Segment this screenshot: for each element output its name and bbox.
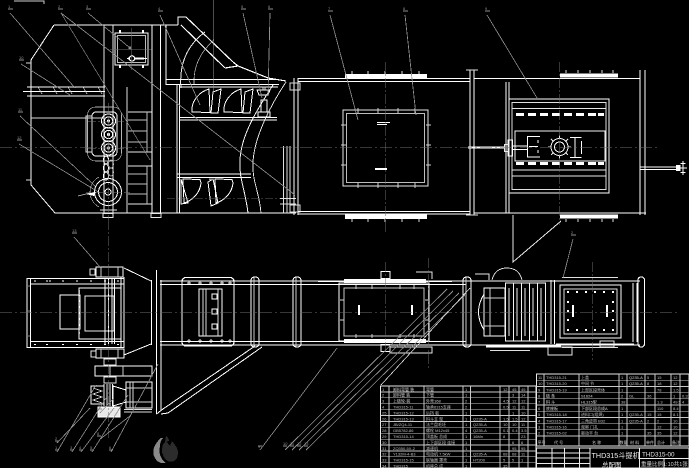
svg-text:下部区段总成A: 下部区段总成A <box>581 405 608 411</box>
svg-text:减速机: 减速机 <box>426 445 438 451</box>
svg-text:弯管: 弯管 <box>426 386 434 392</box>
svg-text:1.5: 1.5 <box>673 387 679 392</box>
svg-text:28: 28 <box>382 428 387 433</box>
svg-text:轴承6315支座: 轴承6315支座 <box>426 404 451 410</box>
svg-text:卸料弯管 装: 卸料弯管 装 <box>393 386 414 392</box>
svg-text:68: 68 <box>503 452 508 457</box>
svg-text:10: 10 <box>673 418 678 423</box>
svg-text:Q235-A: Q235-A <box>473 428 487 433</box>
svg-text:材 料: 材 料 <box>630 439 639 445</box>
svg-text:THD315-19: THD315-19 <box>546 387 567 392</box>
svg-text:12: 12 <box>521 416 526 421</box>
svg-text:15: 15 <box>647 412 652 417</box>
svg-text:THD315-17: THD315-17 <box>546 418 567 423</box>
svg-text:上下部区段 连接: 上下部区段 连接 <box>426 439 455 445</box>
svg-text:10: 10 <box>19 55 24 60</box>
svg-text:序号: 序号 <box>538 439 546 445</box>
svg-text:THD315-14: THD315-14 <box>393 434 414 439</box>
svg-text:Q235-A: Q235-A <box>629 381 643 386</box>
svg-text:12: 12 <box>512 399 517 404</box>
svg-text:Q235-A: Q235-A <box>629 418 643 423</box>
svg-text:电动机 7.5kW: 电动机 7.5kW <box>426 451 451 457</box>
svg-text:后挡 板: 后挡 板 <box>426 409 439 415</box>
svg-text:上部区段壳体: 上部区段壳体 <box>581 386 605 392</box>
svg-text:链 条: 链 条 <box>546 393 555 399</box>
svg-text:单件: 单件 <box>646 439 654 445</box>
svg-text:0.315: 0.315 <box>682 394 689 399</box>
svg-text:联轴器 罩壳: 联轴器 罩壳 <box>426 457 447 463</box>
svg-text:0.1: 0.1 <box>503 428 509 433</box>
svg-text:35: 35 <box>503 464 508 468</box>
svg-text:12: 12 <box>673 431 678 436</box>
svg-text:代 号: 代 号 <box>554 439 563 445</box>
svg-text:GB5782-86: GB5782-86 <box>393 428 414 433</box>
svg-text:料 斗: 料 斗 <box>546 399 555 405</box>
svg-text:数量: 数量 <box>620 439 628 445</box>
svg-text:三角皮带 B32: 三角皮带 B32 <box>581 417 606 423</box>
svg-text:95: 95 <box>512 446 517 451</box>
svg-text:10: 10 <box>283 441 288 446</box>
svg-text:THD315-02: THD315-02 <box>546 431 567 436</box>
svg-text:THD315-16: THD315-16 <box>546 425 567 430</box>
svg-text:1.5: 1.5 <box>503 416 509 421</box>
svg-text:35: 35 <box>647 431 652 436</box>
svg-text:1.5: 1.5 <box>512 416 518 421</box>
svg-text:18: 18 <box>657 381 662 386</box>
svg-text:10: 10 <box>521 410 526 415</box>
svg-text:36: 36 <box>647 394 652 399</box>
svg-text:上盖: 上盖 <box>581 374 589 380</box>
svg-text:THD315-20: THD315-20 <box>546 381 567 386</box>
svg-text:顶盖板 总成: 顶盖板 总成 <box>426 433 447 439</box>
svg-text:15: 15 <box>657 375 662 380</box>
svg-text:0.4: 0.4 <box>512 428 518 433</box>
svg-text:12: 12 <box>657 425 662 430</box>
svg-text:THD315: THD315 <box>393 464 409 468</box>
svg-text:底座板: 底座板 <box>546 405 558 411</box>
svg-text:10: 10 <box>673 425 678 430</box>
svg-text:Q235-A: Q235-A <box>473 416 487 421</box>
svg-text:0.5: 0.5 <box>503 405 509 410</box>
svg-text:23: 23 <box>521 434 526 439</box>
svg-text:THD315-12: THD315-12 <box>393 410 414 415</box>
svg-text:螺栓 M12x45: 螺栓 M12x45 <box>426 427 450 433</box>
svg-text:13: 13 <box>72 228 77 233</box>
svg-text:3.5: 3.5 <box>521 428 527 433</box>
svg-text:12: 12 <box>503 387 508 392</box>
svg-text:驱动平 台: 驱动平 台 <box>581 430 598 436</box>
svg-text:25: 25 <box>382 410 387 415</box>
svg-text:总配图: 总配图 <box>602 460 622 468</box>
svg-text:名 称: 名 称 <box>592 439 601 445</box>
svg-text:下管: 下管 <box>426 392 434 398</box>
svg-text:THD315-21: THD315-21 <box>546 375 567 380</box>
svg-text:4.5: 4.5 <box>503 399 509 404</box>
svg-text:15: 15 <box>657 412 662 417</box>
svg-text:总计: 总计 <box>657 439 665 445</box>
svg-text:THD315斗提机: THD315斗提机 <box>592 451 641 460</box>
svg-text:观察 门孔: 观察 门孔 <box>581 424 598 430</box>
svg-text:30: 30 <box>382 440 387 445</box>
svg-text:进料口(组焊): 进料口(组焊) <box>581 411 604 417</box>
svg-text:ZQ350-5X-2: ZQ350-5X-2 <box>393 446 416 451</box>
svg-text:THD315-11: THD315-11 <box>393 405 414 410</box>
svg-text:10: 10 <box>503 422 508 427</box>
svg-text:26: 26 <box>382 416 387 421</box>
svg-text:Y132M-4-B3: Y132M-4-B3 <box>393 452 416 457</box>
svg-text:33: 33 <box>382 458 387 463</box>
svg-text:12: 12 <box>521 399 526 404</box>
svg-text:JB/ZQ4-11: JB/ZQ4-11 <box>393 422 413 427</box>
svg-text:34: 34 <box>382 464 387 468</box>
svg-text:HL315型: HL315型 <box>581 399 597 405</box>
svg-text:27: 27 <box>382 422 387 427</box>
svg-text:12: 12 <box>297 441 302 446</box>
svg-text:THD315-15: THD315-15 <box>393 458 414 463</box>
svg-text:8.4: 8.4 <box>673 406 679 411</box>
svg-text:68: 68 <box>512 452 517 457</box>
svg-text:Q235-A: Q235-A <box>629 412 643 417</box>
svg-text:38: 38 <box>621 400 626 405</box>
svg-text:10: 10 <box>538 381 543 386</box>
svg-text:外壳168: 外壳168 <box>426 398 441 404</box>
svg-text:14: 14 <box>521 393 526 398</box>
svg-text:Q235-A: Q235-A <box>473 452 487 457</box>
svg-text:重量比例1:10共1张: 重量比例1:10共1张 <box>641 460 688 468</box>
svg-text:110: 110 <box>657 406 664 411</box>
svg-text:35: 35 <box>657 431 662 436</box>
svg-text:料斗支 架: 料斗支 架 <box>426 415 443 421</box>
svg-text:45: 45 <box>521 387 526 392</box>
svg-text:法兰盘毛坯: 法兰盘毛坯 <box>426 421 446 427</box>
svg-text:16Mn: 16Mn <box>473 434 483 439</box>
svg-text:29: 29 <box>382 434 387 439</box>
svg-text:12: 12 <box>673 375 678 380</box>
svg-text:45: 45 <box>512 387 517 392</box>
svg-text:8.1: 8.1 <box>673 412 679 417</box>
svg-text:32: 32 <box>382 452 387 457</box>
svg-text:备注: 备注 <box>672 439 680 445</box>
svg-text:13: 13 <box>304 441 309 446</box>
svg-text:S1624: S1624 <box>581 394 593 399</box>
svg-text:10: 10 <box>512 422 517 427</box>
svg-text:GL: GL <box>629 394 635 399</box>
svg-text:卸料管 装: 卸料管 装 <box>393 392 410 398</box>
svg-text:THD315-13: THD315-13 <box>393 416 414 421</box>
svg-text:78: 78 <box>657 387 662 392</box>
svg-text:49.5: 49.5 <box>673 400 682 405</box>
svg-text:31: 31 <box>382 446 387 451</box>
svg-text:THD315-00: THD315-00 <box>642 452 675 459</box>
svg-text:12: 12 <box>673 381 678 386</box>
svg-text:中间 节: 中间 节 <box>581 380 594 386</box>
svg-text:1.3: 1.3 <box>657 400 663 405</box>
svg-text:Q235-A: Q235-A <box>473 422 487 427</box>
svg-text:THD315-18: THD315-18 <box>546 412 567 417</box>
svg-text:上链轮-装: 上链轮-装 <box>393 398 410 404</box>
svg-text:12: 12 <box>17 135 22 140</box>
svg-text:Q235-A: Q235-A <box>629 375 643 380</box>
svg-text:机座总 成: 机座总 成 <box>426 463 443 468</box>
svg-text:95: 95 <box>521 446 526 451</box>
svg-text:HT200: HT200 <box>473 458 486 463</box>
